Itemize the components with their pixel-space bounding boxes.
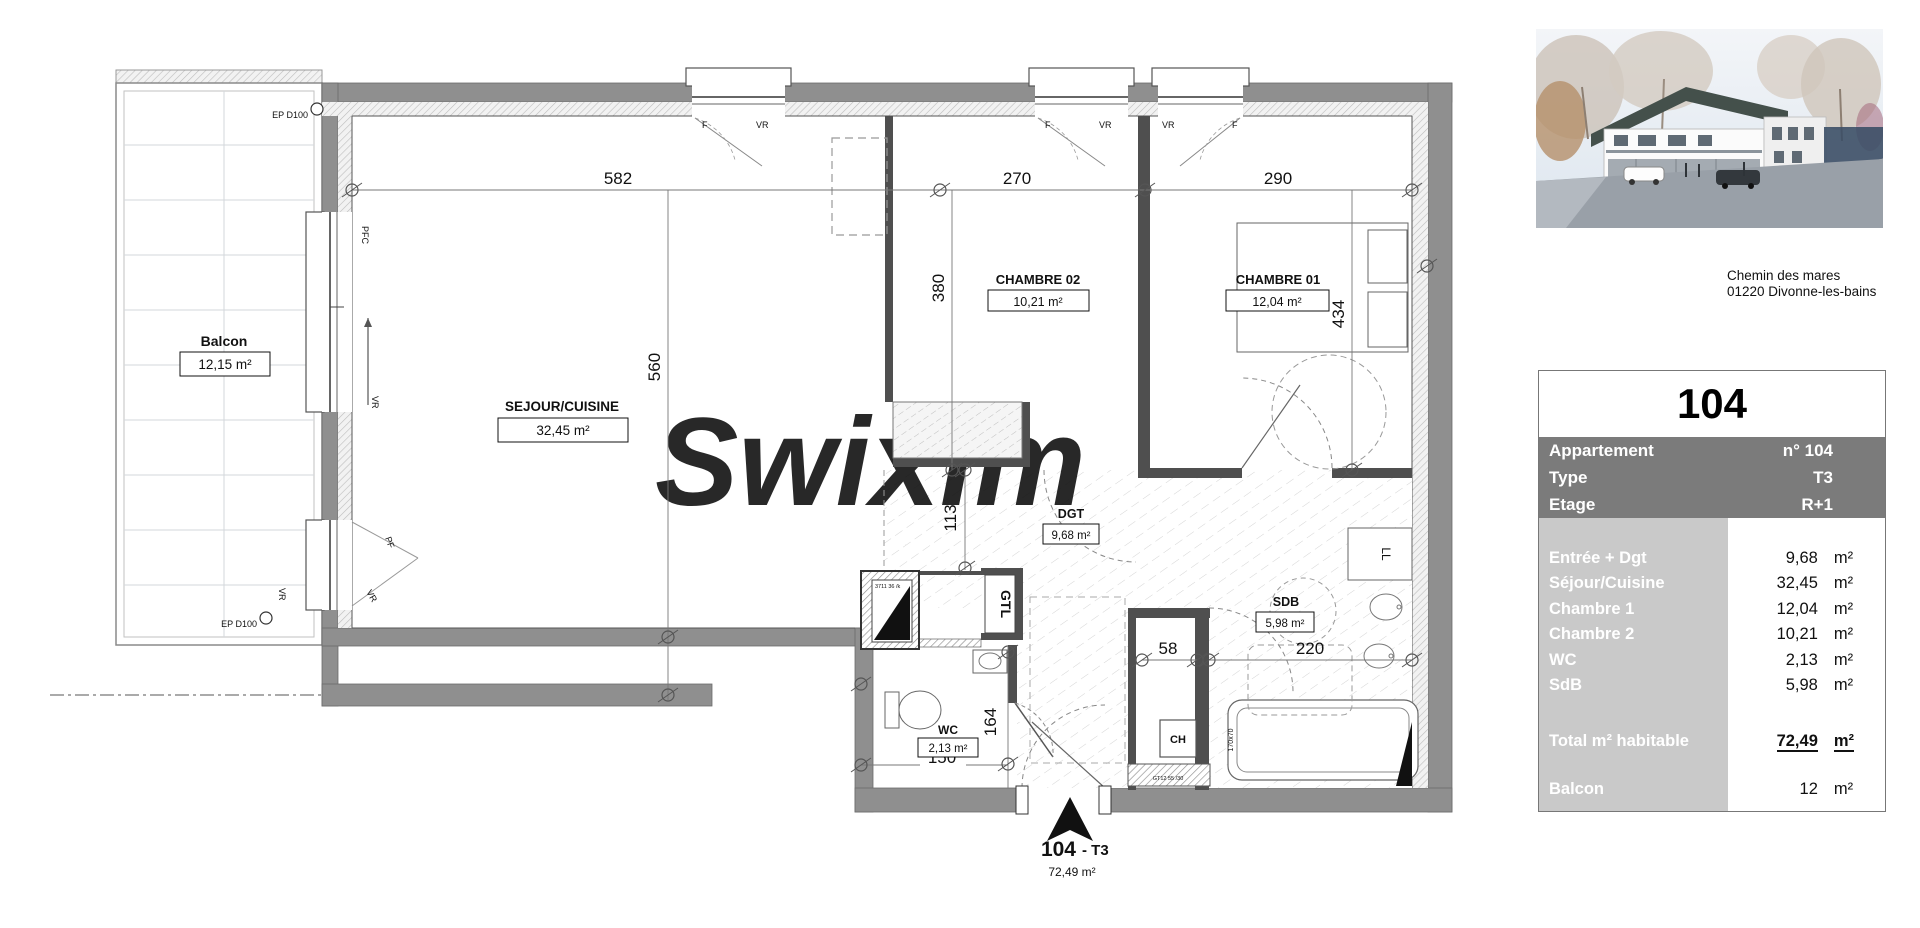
kitchen-block bbox=[832, 138, 887, 235]
water-heater: CH bbox=[1160, 720, 1196, 757]
svg-text:2,13 m²: 2,13 m² bbox=[929, 743, 968, 755]
dim-58: 58 bbox=[1159, 639, 1178, 658]
entrance-type: - T3 bbox=[1082, 842, 1109, 859]
svg-text:DGT: DGT bbox=[1058, 507, 1085, 521]
gt-label: GT12 55 /30 bbox=[1153, 776, 1184, 782]
svg-text:WC: WC bbox=[938, 723, 958, 737]
gtl-closet: GTL bbox=[985, 575, 1015, 633]
room-chambre1: CHAMBRE 01 12,04 m² bbox=[1226, 272, 1329, 311]
svg-text:5,98 m²: 5,98 m² bbox=[1266, 618, 1305, 630]
entrance-arrow bbox=[1047, 797, 1093, 841]
dim-220: 220 bbox=[1296, 639, 1324, 658]
ch-bottom-wall bbox=[1128, 764, 1210, 786]
window-chambre1: VR F bbox=[1152, 68, 1249, 166]
dim-164: 164 bbox=[981, 708, 1000, 736]
svg-text:9,68 m²: 9,68 m² bbox=[1052, 530, 1091, 542]
ch-label: CH bbox=[1170, 734, 1186, 746]
vr-label: VR bbox=[277, 588, 287, 601]
entrance: 104 - T3 72,49 m² bbox=[1016, 786, 1111, 879]
closet-chambre2 bbox=[893, 402, 1022, 458]
svg-text:10,21 m²: 10,21 m² bbox=[1013, 295, 1062, 309]
dim-270: 270 bbox=[1003, 169, 1031, 188]
f-label: F bbox=[1232, 120, 1238, 130]
svg-text:SDB: SDB bbox=[1273, 595, 1299, 609]
bedroom1-furniture bbox=[1237, 223, 1408, 469]
svg-text:32,45 m²: 32,45 m² bbox=[536, 423, 590, 438]
f-label: F bbox=[702, 120, 708, 130]
vr-label: VR bbox=[364, 588, 379, 604]
floorplan-sheet: Swixim 3711 36 /k GTL bbox=[0, 0, 1920, 928]
dim-380: 380 bbox=[929, 274, 948, 302]
svg-text:12,15 m²: 12,15 m² bbox=[198, 357, 252, 372]
room-chambre2: CHAMBRE 02 10,21 m² bbox=[988, 272, 1089, 311]
svg-text:CHAMBRE 01: CHAMBRE 01 bbox=[1236, 272, 1321, 287]
dim-290: 290 bbox=[1264, 169, 1292, 188]
window-chambre2: F VR bbox=[1029, 68, 1134, 166]
ep-label-top: EP D100 bbox=[272, 110, 308, 120]
bathtub bbox=[1228, 700, 1418, 780]
entrance-area: 72,49 m² bbox=[1048, 865, 1095, 879]
dim-582: 582 bbox=[604, 169, 632, 188]
toilet-tank bbox=[885, 692, 899, 728]
entrance-number: 104 bbox=[1041, 838, 1076, 861]
vr-label: VR bbox=[370, 396, 380, 409]
bathtub-size: 170x70 bbox=[1228, 728, 1235, 751]
ll-label: LL bbox=[1379, 547, 1393, 561]
dim-434: 434 bbox=[1329, 300, 1348, 328]
vr-label: VR bbox=[1099, 120, 1112, 130]
svg-text:Balcon: Balcon bbox=[201, 333, 248, 349]
washing-machine: LL bbox=[1348, 528, 1412, 580]
gtl-label: GTL bbox=[998, 590, 1014, 618]
vr-label: VR bbox=[1162, 120, 1175, 130]
vr-label: VR bbox=[756, 120, 769, 130]
window-pfc: PFC VR bbox=[306, 212, 380, 412]
pf-label: PF bbox=[383, 535, 397, 550]
technical-shaft: 3711 36 /k bbox=[861, 571, 919, 649]
toilet-bowl bbox=[899, 691, 941, 729]
window-sejour: F VR bbox=[686, 68, 791, 166]
ep-label-bottom: EP D100 bbox=[221, 619, 257, 629]
pfc-label: PFC bbox=[360, 226, 370, 245]
dim-113: 113 bbox=[941, 504, 960, 531]
svg-text:CHAMBRE 02: CHAMBRE 02 bbox=[996, 272, 1081, 287]
f-label: F bbox=[1045, 120, 1051, 130]
svg-text:12,04 m²: 12,04 m² bbox=[1252, 295, 1301, 309]
floorplan-drawing: Swixim 3711 36 /k GTL bbox=[0, 0, 1920, 928]
dim-560: 560 bbox=[645, 353, 664, 381]
room-sejour: SEJOUR/CUISINE 32,45 m² bbox=[498, 399, 628, 442]
shaft-label: 3711 36 /k bbox=[875, 584, 901, 590]
svg-text:SEJOUR/CUISINE: SEJOUR/CUISINE bbox=[505, 399, 619, 414]
